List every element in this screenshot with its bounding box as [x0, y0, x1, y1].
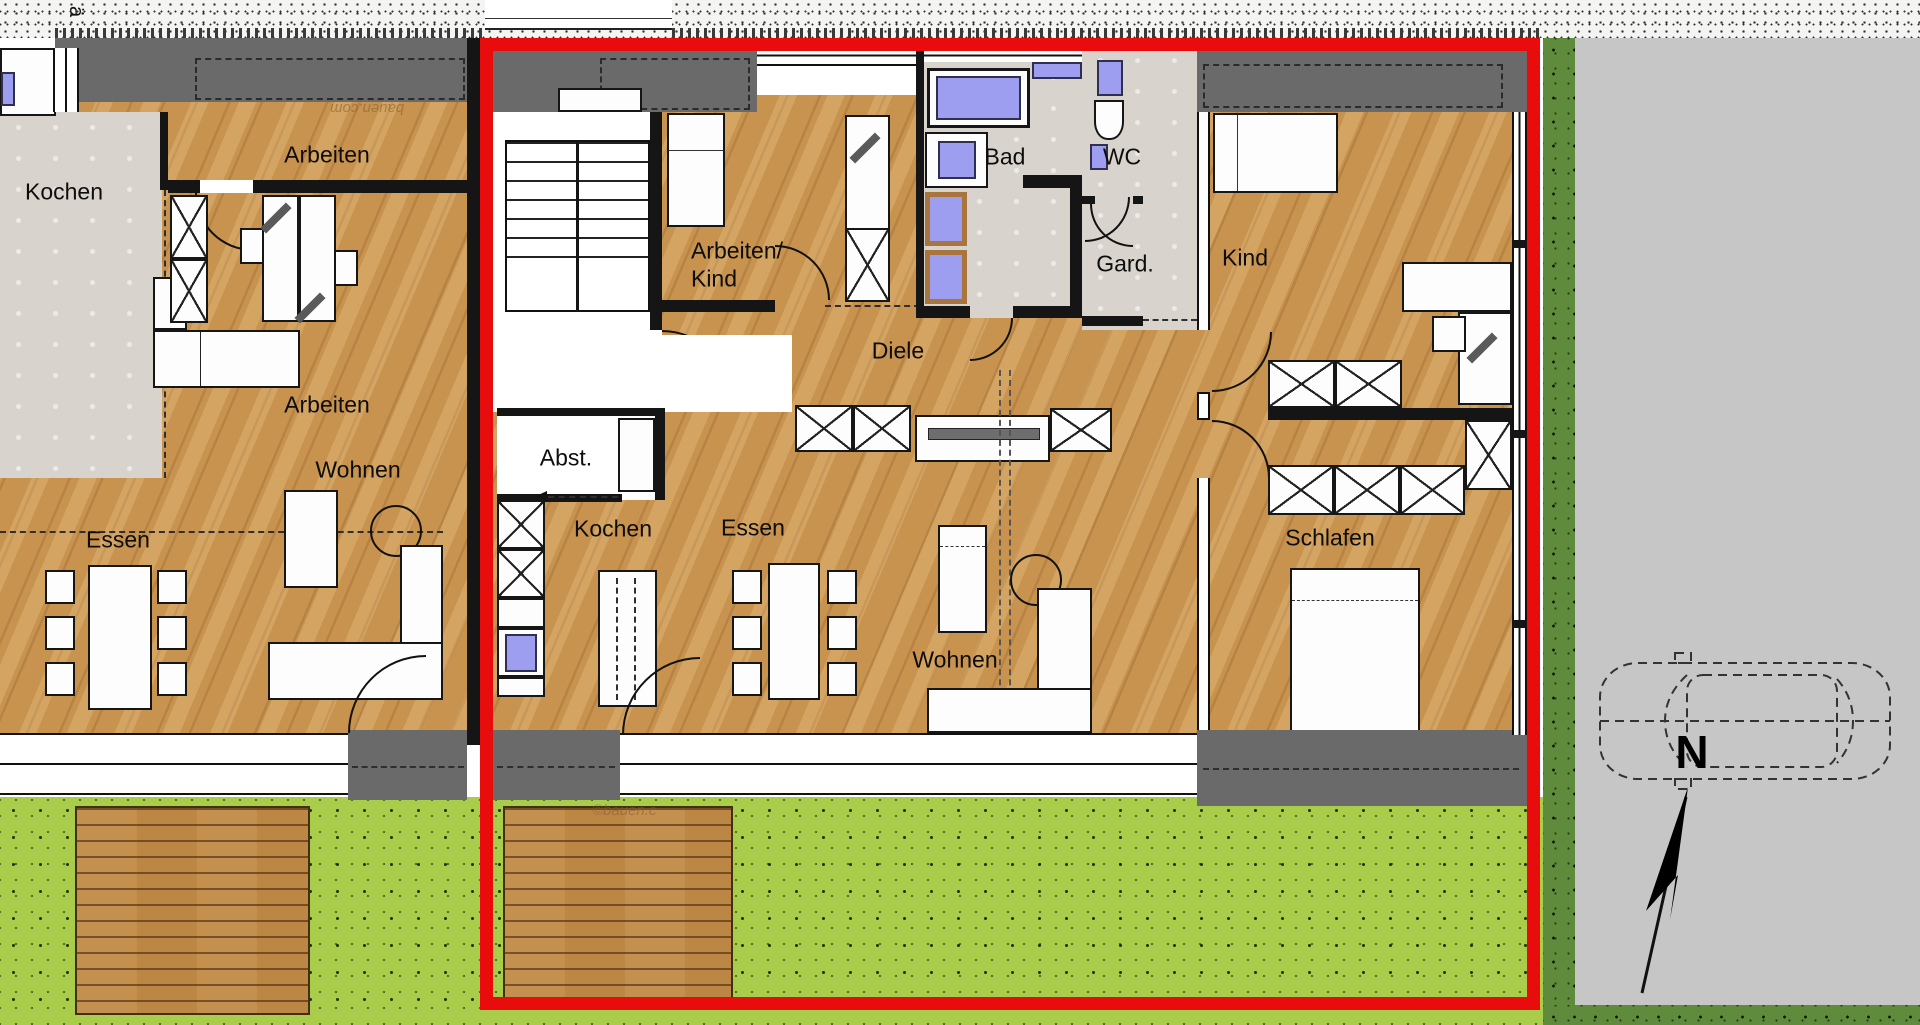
room-label-kind: Kind — [1222, 245, 1268, 272]
left-kitchen-wall-stub — [160, 112, 168, 190]
room-label-wohnen-unit: Wohnen — [912, 647, 997, 674]
left-kitchen-tile-floor — [0, 112, 162, 478]
left-counter-divider — [200, 332, 201, 386]
room-label-abst: Abst. — [540, 445, 592, 472]
left-kitchen-sink — [1, 72, 15, 106]
left-office-door-opening — [200, 180, 253, 193]
room-label-gard: Gard. — [1096, 251, 1154, 278]
watermark-bottom: ©bauen.c — [592, 802, 656, 819]
party-wall — [467, 38, 480, 745]
left-chair — [157, 616, 187, 650]
left-chair — [157, 570, 187, 604]
left-terrace-deck — [75, 806, 310, 1015]
room-label-wc: WC — [1103, 144, 1141, 171]
edge-glyph: ä — [64, 6, 87, 17]
hedge-strip-bottom — [1543, 1005, 1920, 1025]
room-label-kochen-unit: Kochen — [574, 516, 652, 543]
room-label-arbeiten-mid: Arbeiten — [284, 392, 370, 419]
room-label-essen-left: Essen — [86, 527, 150, 554]
room-label-arbeiten-top: Arbeiten — [284, 142, 370, 169]
hedge-strip-vertical — [1543, 38, 1575, 1025]
left-chair — [157, 662, 187, 696]
left-desk-chair-2 — [334, 250, 358, 286]
north-wall-hatch-right — [672, 28, 1543, 38]
left-chair — [45, 570, 75, 604]
left-tv-board — [284, 490, 338, 588]
left-chair — [45, 662, 75, 696]
room-label-bad: Bad — [985, 144, 1026, 171]
left-south-wall-dash — [352, 766, 464, 768]
left-south-wall — [348, 730, 467, 800]
left-chair — [45, 616, 75, 650]
room-label-diele: Diele — [872, 338, 924, 365]
left-kitchen-counter — [153, 330, 300, 388]
left-dining-table — [88, 565, 152, 710]
walkway-line — [485, 18, 672, 19]
room-label-arbeiten-kind-2: Kind — [691, 266, 737, 293]
north-label: N — [1675, 725, 1708, 779]
room-label-schlafen: Schlafen — [1285, 525, 1375, 552]
left-window-frame — [53, 48, 79, 112]
north-wall-hatch-left — [55, 28, 483, 38]
floor-plan: N Kochen Arbeiten Arbeiten Wohnen Essen … — [0, 0, 1920, 1025]
entrance-walkway — [485, 0, 672, 30]
room-label-kochen-left: Kochen — [25, 179, 103, 206]
left-roof-overhang-dashed — [195, 58, 465, 100]
left-desk-chair-1 — [240, 228, 264, 264]
watermark-top: bauen.com — [330, 100, 404, 117]
left-south-window — [0, 733, 348, 795]
room-label-wohnen-left: Wohnen — [315, 457, 400, 484]
left-wardrobe-top — [170, 195, 208, 259]
room-label-arbeiten-kind-1: Arbeiten/ — [691, 238, 783, 265]
room-label-essen-unit: Essen — [721, 515, 785, 542]
left-wardrobe-bottom — [170, 259, 208, 323]
